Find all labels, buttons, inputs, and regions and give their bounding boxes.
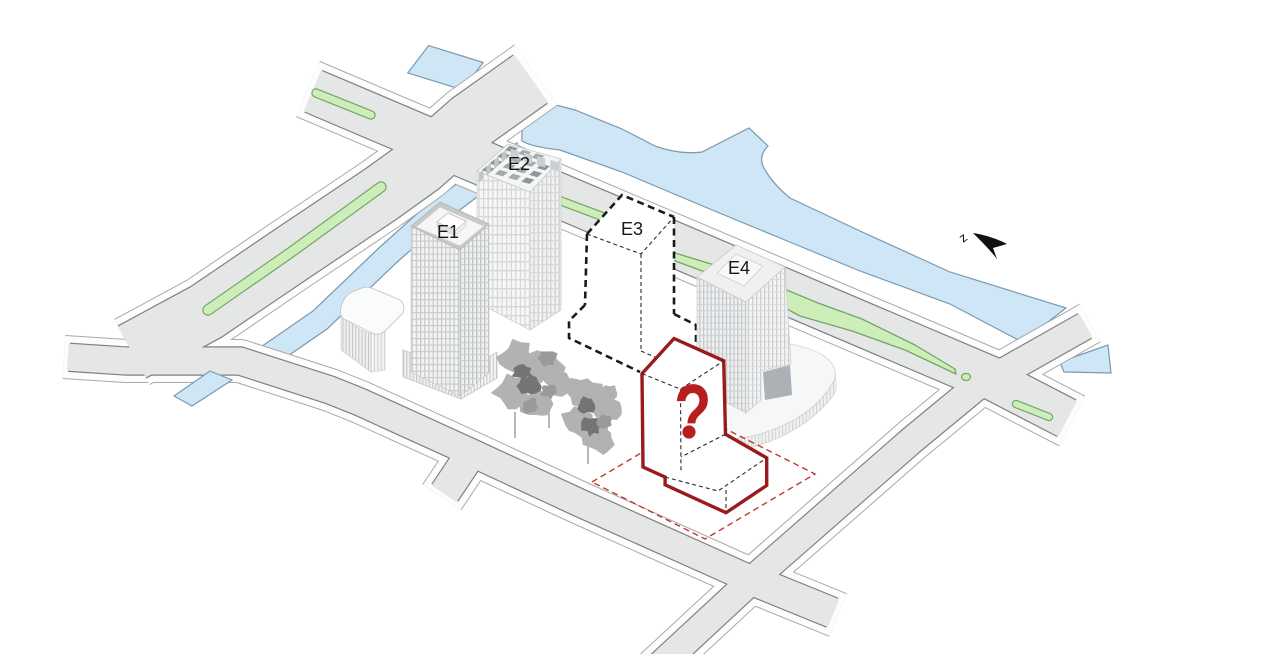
svg-text:E3: E3 — [621, 219, 643, 239]
svg-text:E2: E2 — [508, 154, 530, 174]
svg-text:E1: E1 — [437, 222, 459, 242]
svg-text:?: ? — [674, 368, 711, 458]
svg-text:E4: E4 — [728, 258, 750, 278]
